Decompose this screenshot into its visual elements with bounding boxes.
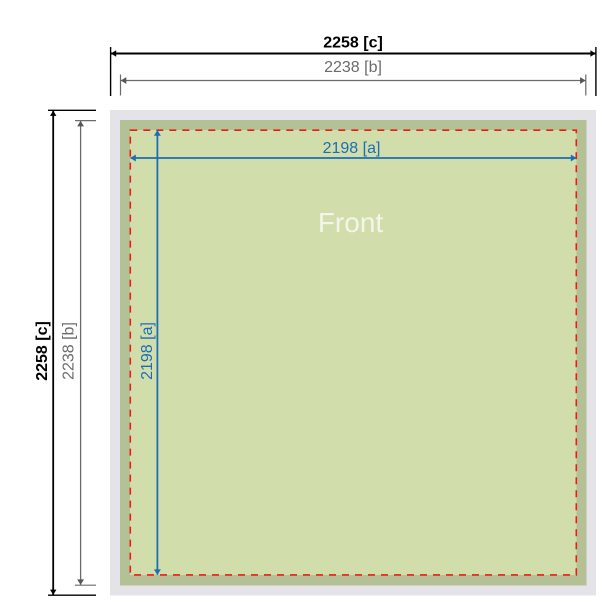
svg-text:2258 [c]: 2258 [c] <box>323 35 383 52</box>
svg-text:2258 [c]: 2258 [c] <box>34 321 51 381</box>
svg-text:2198 [a]: 2198 [a] <box>139 322 156 380</box>
svg-text:2198 [a]: 2198 [a] <box>323 140 381 157</box>
svg-text:2238 [b]: 2238 [b] <box>324 59 382 76</box>
svg-text:2238 [b]: 2238 [b] <box>61 322 78 380</box>
svg-text:Front: Front <box>318 207 384 238</box>
